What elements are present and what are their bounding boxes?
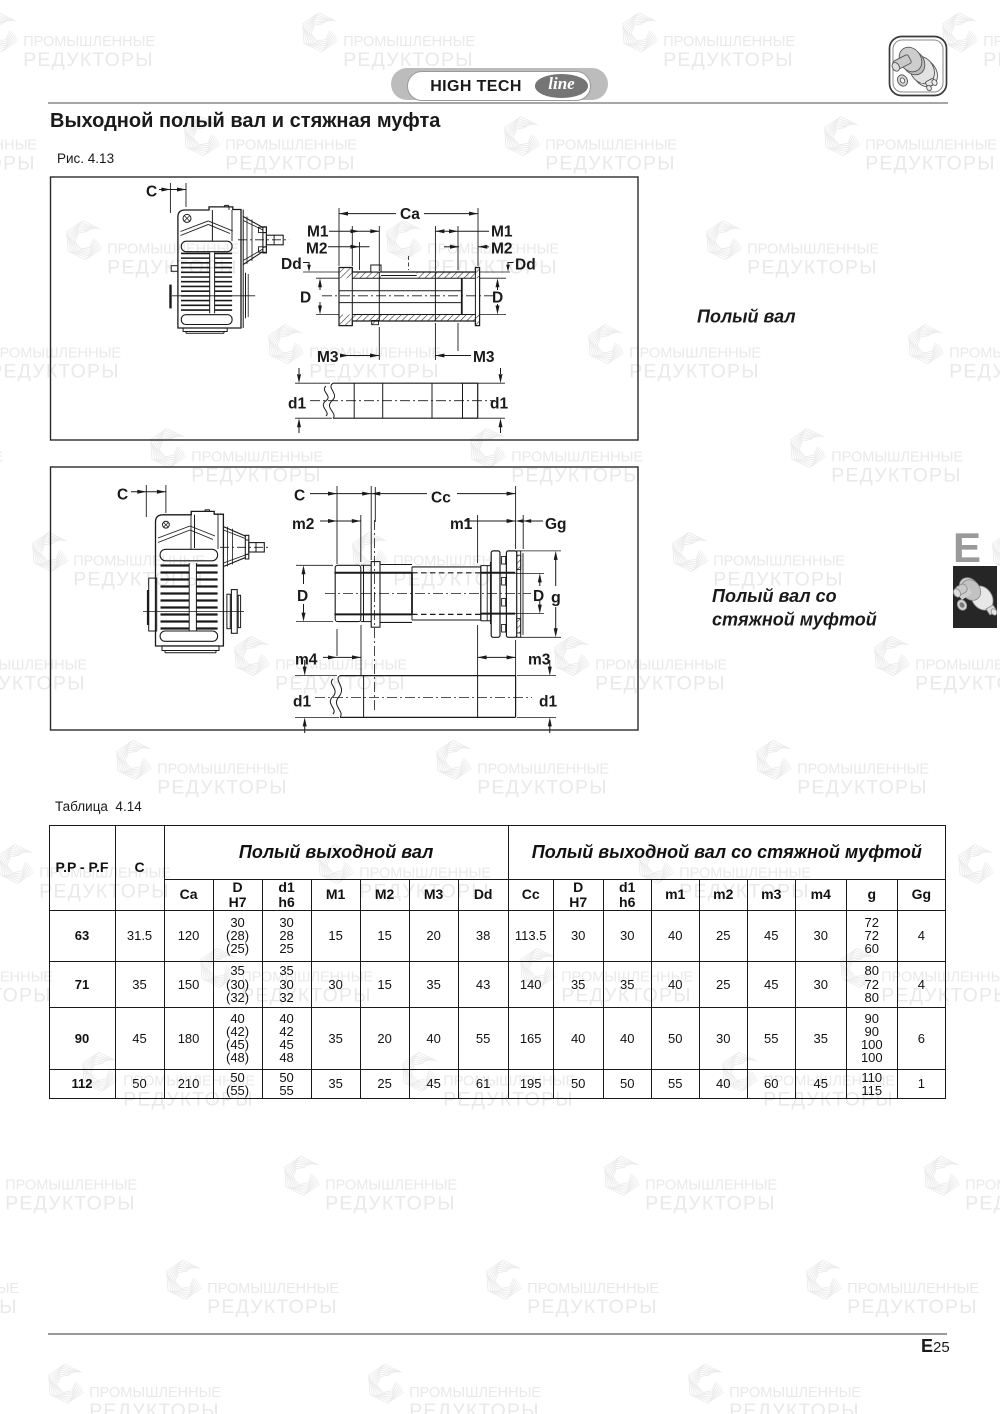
svg-text:d1: d1 — [288, 396, 306, 413]
svg-text:Gg: Gg — [545, 516, 567, 533]
svg-text:D: D — [533, 588, 544, 605]
svg-text:D: D — [297, 588, 308, 605]
svg-text:M3: M3 — [473, 349, 495, 366]
svg-text:Ca: Ca — [400, 206, 420, 223]
svg-text:D: D — [492, 290, 503, 307]
svg-text:Dd: Dd — [281, 256, 302, 273]
svg-text:m1: m1 — [450, 516, 473, 533]
svg-text:d1: d1 — [293, 694, 311, 711]
svg-text:M1: M1 — [307, 224, 329, 241]
svg-text:C: C — [146, 184, 157, 201]
svg-text:d1: d1 — [539, 694, 557, 711]
svg-text:Dd: Dd — [515, 257, 536, 274]
svg-text:C: C — [294, 488, 305, 505]
svg-text:M3: M3 — [317, 349, 339, 366]
svg-text:m2: m2 — [292, 516, 314, 533]
svg-text:m4: m4 — [295, 652, 318, 669]
svg-text:Полый вал со: Полый вал со — [712, 586, 837, 606]
svg-text:m3: m3 — [528, 652, 551, 669]
svg-text:Cc: Cc — [431, 490, 451, 507]
svg-text:g: g — [551, 590, 561, 607]
svg-text:M2: M2 — [306, 241, 328, 258]
svg-text:C: C — [117, 487, 128, 504]
svg-text:M2: M2 — [491, 241, 513, 258]
svg-text:стяжной муфтой: стяжной муфтой — [712, 610, 877, 630]
svg-text:d1: d1 — [490, 396, 508, 413]
svg-text:D: D — [300, 290, 311, 307]
svg-text:M1: M1 — [491, 224, 513, 241]
svg-text:Полый вал: Полый вал — [697, 307, 796, 327]
